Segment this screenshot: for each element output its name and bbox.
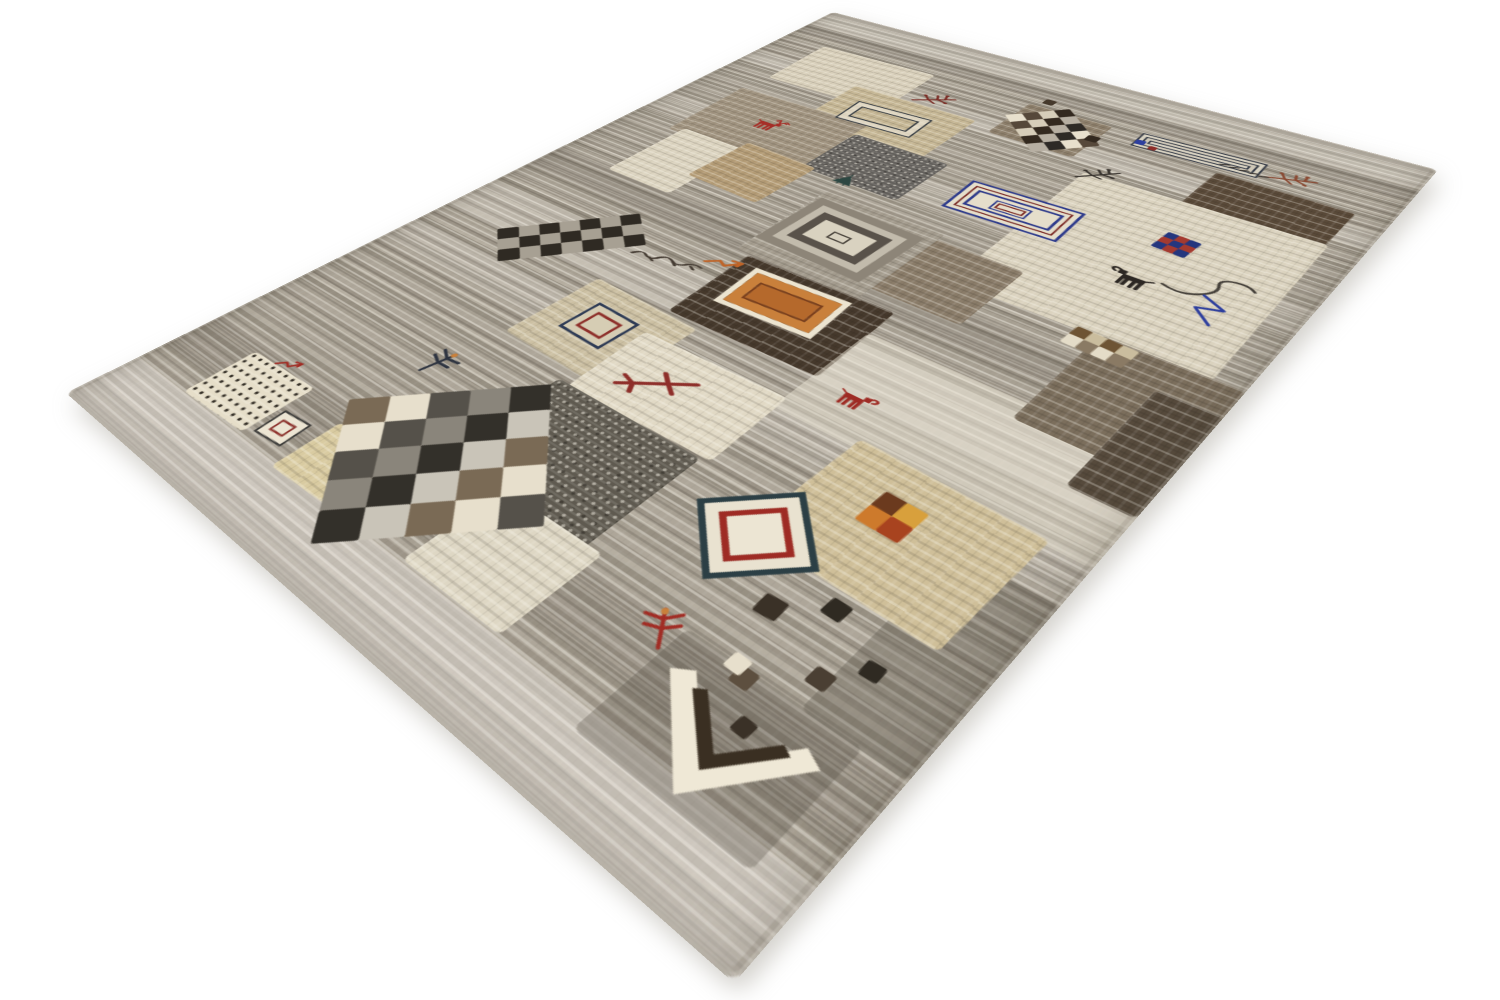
rug	[66, 12, 1438, 983]
checkerboard-large-cell	[467, 387, 511, 416]
checkerboard-large-cell	[463, 412, 509, 442]
checkerboard-large-cell	[426, 390, 472, 419]
checkerboard-band-left-cell	[498, 247, 520, 261]
checkerboard-band-left-cell	[540, 242, 562, 255]
checkerboard-large-cell	[500, 463, 547, 497]
checkerboard-large-cell	[421, 415, 468, 445]
checkerboard-large-cell	[372, 445, 422, 477]
checkerboard-large-cell	[404, 500, 456, 536]
dragonfly	[410, 345, 467, 379]
checkerboard-large-cell	[378, 418, 426, 449]
checkerboard-large-cell	[455, 467, 504, 501]
checkerboard-large	[312, 384, 551, 542]
diamond-rings	[697, 492, 820, 579]
checkerboard-large-cell	[503, 435, 549, 467]
scatter-square	[1042, 99, 1058, 106]
checkerboard-large-cell	[343, 396, 391, 425]
checkerboard-large-cell	[328, 448, 379, 480]
scatter-square	[751, 592, 790, 621]
checkerboard-band-left-cell	[581, 238, 604, 251]
checkerboard-large-cell	[384, 393, 431, 422]
checkerboard-band-left	[499, 213, 646, 260]
checkerboard-large-cell	[415, 442, 463, 474]
checkerboard-large-cell	[320, 476, 373, 510]
checkerboard-band-left-cell	[602, 236, 625, 249]
checkerboard-band-left-cell	[519, 245, 541, 258]
signature-scribble	[622, 241, 711, 280]
checkerboard-large-cell	[358, 503, 411, 539]
checkerboard-large-cell	[505, 409, 550, 439]
scatter-square	[819, 596, 854, 623]
checkerboard-large-cell	[497, 493, 546, 529]
checkerboard-large-cell	[311, 507, 366, 543]
rug-shadow	[0, 0, 1500, 1000]
checkerboard-band-left-cell	[561, 240, 584, 253]
insect-red	[633, 605, 690, 652]
checkerboard-large-cell	[459, 438, 506, 470]
checkerboard-top	[1006, 109, 1100, 151]
checkerboard-large-cell	[410, 470, 460, 504]
checkerboard-large-cell	[450, 496, 500, 532]
checkerboard-large-cell	[508, 384, 551, 413]
checkerboard-large-cell	[365, 473, 416, 507]
rug-surface	[66, 12, 1438, 983]
photo-canvas	[0, 0, 1500, 1000]
checkerboard-large-cell	[336, 421, 385, 452]
